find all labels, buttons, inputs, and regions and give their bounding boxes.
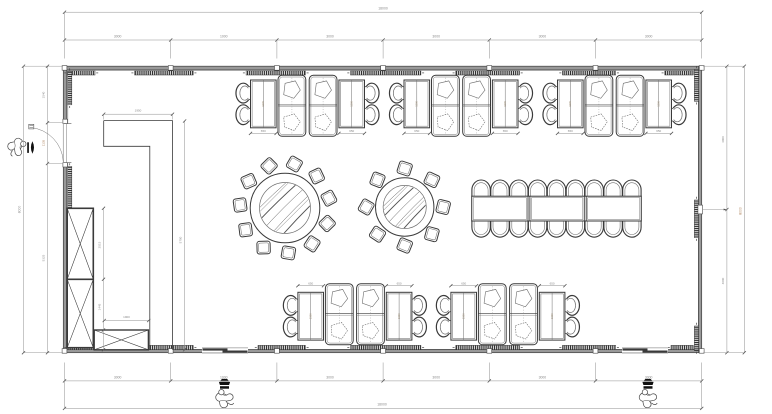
svg-text:1540: 1540: [42, 91, 46, 98]
svg-text:650: 650: [503, 129, 508, 133]
svg-text:4000: 4000: [721, 136, 725, 143]
svg-text:5325: 5325: [42, 254, 46, 261]
svg-text:650: 650: [349, 129, 354, 133]
svg-text:650: 650: [461, 282, 466, 286]
svg-text:1135: 1135: [42, 139, 46, 146]
svg-text:650: 650: [397, 282, 402, 286]
svg-text:3000: 3000: [432, 375, 440, 379]
svg-text:3000: 3000: [326, 375, 334, 379]
svg-text:650: 650: [656, 129, 661, 133]
svg-text:3000: 3000: [645, 375, 653, 379]
svg-text:8000: 8000: [738, 207, 742, 215]
svg-text:18000: 18000: [377, 403, 387, 407]
svg-text:1000: 1000: [220, 375, 228, 379]
svg-text:3000: 3000: [326, 35, 334, 39]
svg-text:1445: 1445: [98, 303, 102, 310]
svg-text:3000: 3000: [114, 35, 122, 39]
svg-text:650: 650: [308, 282, 313, 286]
svg-text:1900: 1900: [123, 315, 130, 319]
svg-text:650: 650: [550, 282, 555, 286]
svg-text:3000: 3000: [645, 35, 653, 39]
svg-text:5700: 5700: [179, 236, 183, 243]
svg-text:1950: 1950: [135, 109, 142, 113]
svg-text:650: 650: [568, 129, 573, 133]
svg-text:650: 650: [414, 129, 419, 133]
svg-text:8000: 8000: [18, 206, 22, 214]
svg-text:2515: 2515: [98, 241, 102, 248]
svg-text:4000: 4000: [721, 277, 725, 284]
svg-text:3000: 3000: [539, 35, 547, 39]
svg-text:650: 650: [261, 129, 266, 133]
svg-text:3000: 3000: [114, 375, 122, 379]
svg-text:1000: 1000: [220, 35, 228, 39]
svg-text:3000: 3000: [539, 375, 547, 379]
svg-text:3000: 3000: [432, 35, 440, 39]
svg-text:18000: 18000: [378, 6, 388, 10]
